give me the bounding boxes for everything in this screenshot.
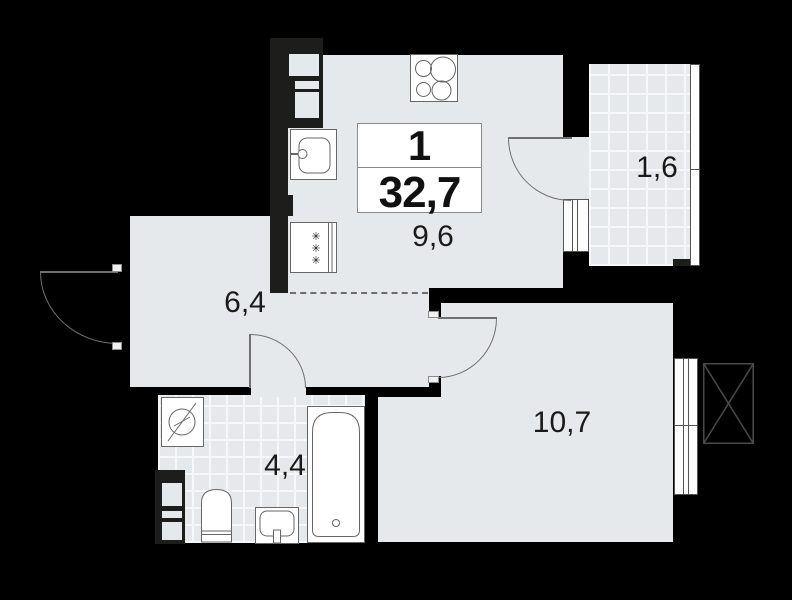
vent-shaft-cutout-3	[295, 92, 319, 118]
rooms-count: 1	[358, 124, 481, 168]
unit-info-box: 1 32,7	[357, 123, 482, 213]
entrance-door-arc	[40, 272, 118, 344]
bathroom-area-label: 4,4	[250, 448, 320, 484]
ac-unit-icon	[703, 363, 754, 444]
kitchen-balcony-window	[563, 199, 589, 252]
svg-text:✳: ✳	[311, 255, 320, 267]
door-jamb-notch	[112, 264, 122, 272]
balcony-area-label: 1,6	[622, 150, 692, 186]
kitchen-sink-icon	[290, 129, 337, 180]
toilet-icon	[199, 487, 234, 544]
washbasin-icon	[255, 507, 299, 544]
niche-cutout-3	[162, 522, 182, 540]
svg-text:✳: ✳	[311, 231, 320, 243]
fridge-icon: ✳ ✳ ✳	[290, 222, 337, 273]
washing-machine-icon	[161, 397, 204, 447]
total-area: 32,7	[358, 168, 481, 218]
kitchen-area-label: 9,6	[398, 219, 468, 255]
vent-shaft-cutout-1	[289, 54, 319, 76]
niche-cutout-2	[162, 511, 182, 518]
balcony-edge-tick	[673, 259, 690, 266]
svg-text:✳: ✳	[311, 243, 320, 255]
living-room-floor-extension	[378, 397, 441, 542]
kitchen-hallway-dashed-boundary	[290, 292, 428, 294]
window-tick	[675, 425, 697, 426]
vent-shaft-cutout-2	[295, 81, 319, 89]
window-mullion	[572, 200, 573, 251]
hallway-top-wall-junction	[270, 195, 293, 216]
window-mullion	[688, 359, 689, 494]
hallway-area-label: 6,4	[210, 285, 280, 321]
window-mullion	[683, 359, 684, 494]
niche-cutout-1	[162, 483, 182, 506]
glazing-tick	[691, 169, 699, 170]
floor-plan: ✳ ✳ ✳	[0, 0, 792, 600]
door-jamb-notch	[112, 342, 122, 350]
door-jamb-notch	[428, 311, 439, 318]
window-mullion	[577, 200, 578, 251]
stove-icon	[410, 54, 458, 102]
living-room-window	[674, 358, 698, 495]
door-jamb-notch	[428, 376, 439, 383]
living-room-area-label: 10,7	[522, 405, 602, 441]
